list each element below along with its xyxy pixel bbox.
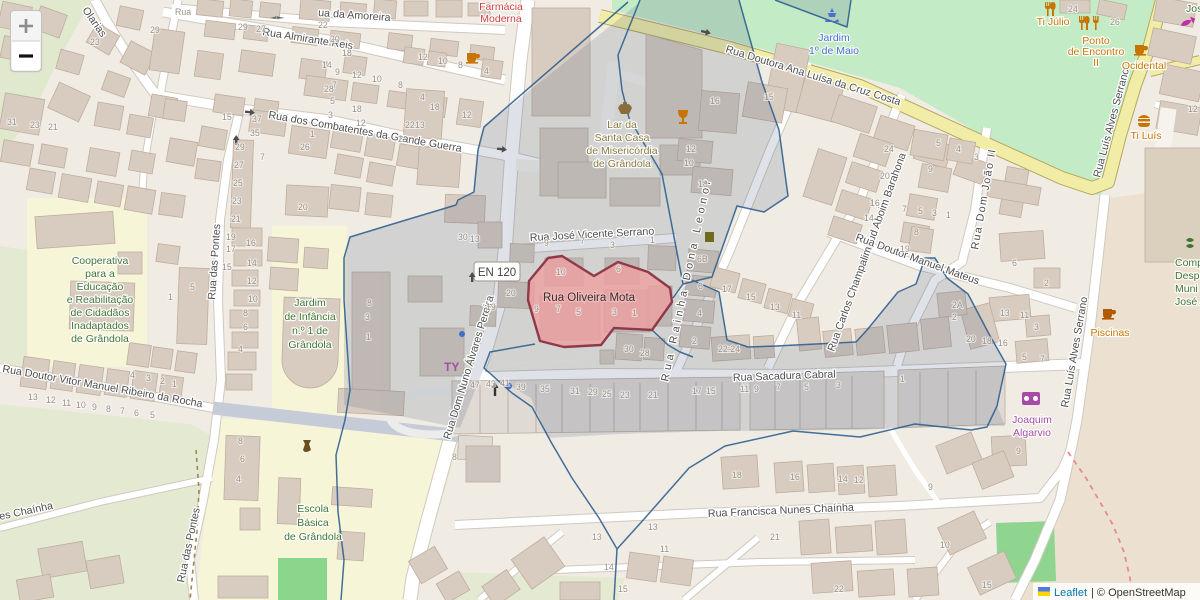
svg-text:3: 3 xyxy=(365,312,370,322)
svg-text:18: 18 xyxy=(430,102,440,112)
svg-text:8: 8 xyxy=(458,60,463,70)
svg-text:16: 16 xyxy=(246,238,256,248)
svg-text:11: 11 xyxy=(792,310,801,320)
svg-text:29: 29 xyxy=(150,25,160,35)
svg-text:4: 4 xyxy=(956,144,961,154)
svg-text:8: 8 xyxy=(398,80,403,90)
svg-text:24: 24 xyxy=(884,144,894,154)
svg-text:3: 3 xyxy=(1034,322,1039,332)
svg-text:22: 22 xyxy=(834,584,844,594)
svg-text:14: 14 xyxy=(322,60,332,70)
svg-text:Algarvio: Algarvio xyxy=(1013,427,1051,439)
svg-text:5: 5 xyxy=(190,282,195,292)
svg-text:para a: para a xyxy=(85,268,115,280)
svg-text:Leaflet: Leaflet xyxy=(1054,587,1087,599)
svg-text:3: 3 xyxy=(974,152,979,162)
svg-text:8: 8 xyxy=(243,308,248,318)
svg-text:1: 1 xyxy=(632,308,637,318)
svg-text:27: 27 xyxy=(234,160,244,170)
svg-text:30: 30 xyxy=(458,232,468,242)
svg-text:26: 26 xyxy=(300,142,310,152)
svg-text:de Misericórdia: de Misericórdia xyxy=(586,145,657,157)
svg-text:de Grândola: de Grândola xyxy=(284,531,342,543)
svg-text:2A: 2A xyxy=(952,300,963,310)
svg-text:5: 5 xyxy=(150,410,155,420)
svg-text:47: 47 xyxy=(470,380,480,390)
svg-text:20: 20 xyxy=(506,288,516,298)
svg-text:José: José xyxy=(1186,3,1200,15)
svg-text:13: 13 xyxy=(470,234,480,244)
svg-text:11: 11 xyxy=(62,398,71,408)
svg-text:7: 7 xyxy=(902,204,907,214)
svg-text:18: 18 xyxy=(352,104,362,114)
svg-text:Jardim: Jardim xyxy=(294,297,326,309)
svg-text:17: 17 xyxy=(692,386,702,396)
svg-text:25: 25 xyxy=(602,389,612,399)
svg-text:27: 27 xyxy=(256,24,266,34)
svg-text:22: 22 xyxy=(318,20,328,30)
svg-text:7: 7 xyxy=(776,382,781,392)
svg-text:21: 21 xyxy=(231,214,241,224)
svg-text:16: 16 xyxy=(998,338,1008,348)
svg-text:29: 29 xyxy=(238,22,248,32)
svg-text:10: 10 xyxy=(684,158,694,168)
svg-text:TY: TY xyxy=(444,360,459,374)
svg-text:43: 43 xyxy=(486,379,496,389)
svg-text:10: 10 xyxy=(438,56,448,66)
svg-text:9: 9 xyxy=(92,402,97,412)
svg-text:31: 31 xyxy=(7,117,17,127)
svg-text:1: 1 xyxy=(366,332,371,342)
svg-text:12: 12 xyxy=(356,118,366,128)
svg-text:37: 37 xyxy=(252,114,262,124)
svg-text:7: 7 xyxy=(120,406,125,416)
svg-text:6: 6 xyxy=(616,264,621,274)
svg-text:13: 13 xyxy=(1000,308,1010,318)
svg-text:30: 30 xyxy=(624,344,634,354)
svg-text:19: 19 xyxy=(486,302,496,312)
svg-text:10: 10 xyxy=(556,267,566,277)
svg-text:8: 8 xyxy=(238,436,243,446)
svg-text:8: 8 xyxy=(914,227,919,237)
svg-text:1: 1 xyxy=(168,292,173,302)
svg-text:12: 12 xyxy=(1188,104,1198,114)
svg-text:4: 4 xyxy=(236,474,241,484)
svg-text:Farmácia: Farmácia xyxy=(479,1,523,13)
svg-text:3: 3 xyxy=(612,307,617,317)
svg-text:15: 15 xyxy=(222,262,232,272)
svg-text:15: 15 xyxy=(222,112,232,122)
svg-text:29: 29 xyxy=(588,387,598,397)
svg-text:9: 9 xyxy=(1016,446,1021,456)
svg-text:1: 1 xyxy=(172,379,177,389)
svg-text:28: 28 xyxy=(324,84,334,94)
svg-text:12: 12 xyxy=(462,110,472,120)
svg-text:de Grândola: de Grândola xyxy=(71,333,129,345)
svg-text:9: 9 xyxy=(544,238,549,248)
svg-text:de Infância: de Infância xyxy=(284,311,336,323)
svg-text:3: 3 xyxy=(836,380,841,390)
svg-text:31: 31 xyxy=(570,386,580,396)
svg-text:23: 23 xyxy=(30,120,40,130)
svg-text:8: 8 xyxy=(367,298,372,308)
svg-text:23: 23 xyxy=(620,390,630,400)
svg-text:14: 14 xyxy=(864,213,874,223)
svg-text:15: 15 xyxy=(982,580,992,590)
svg-text:de Grândola: de Grândola xyxy=(593,158,651,170)
svg-text:6B: 6B xyxy=(697,254,708,264)
svg-text:II: II xyxy=(1093,57,1099,69)
svg-text:4: 4 xyxy=(420,92,425,102)
svg-text:12: 12 xyxy=(247,276,257,286)
svg-text:Moderna: Moderna xyxy=(480,13,522,25)
svg-text:29: 29 xyxy=(235,142,245,152)
svg-text:Comp: Comp xyxy=(1175,257,1200,269)
svg-text:5: 5 xyxy=(330,96,335,106)
svg-text:3: 3 xyxy=(932,208,937,218)
svg-text:21: 21 xyxy=(48,122,58,132)
svg-text:6: 6 xyxy=(243,322,248,332)
svg-text:4: 4 xyxy=(484,66,489,76)
svg-text:13: 13 xyxy=(415,120,425,130)
svg-text:23: 23 xyxy=(90,37,100,47)
svg-text:1º de Maio: 1º de Maio xyxy=(809,45,859,57)
svg-text:14: 14 xyxy=(604,562,614,572)
svg-text:1: 1 xyxy=(650,235,655,245)
svg-text:20: 20 xyxy=(330,34,340,44)
svg-text:9: 9 xyxy=(928,482,933,492)
svg-text:Jardim: Jardim xyxy=(818,32,850,44)
svg-text:15: 15 xyxy=(764,92,774,102)
svg-text:Rua: Rua xyxy=(175,7,191,17)
svg-text:15: 15 xyxy=(618,584,628,594)
svg-text:Ti Luís: Ti Luís xyxy=(1130,130,1161,142)
svg-text:13: 13 xyxy=(592,532,602,542)
svg-text:Ocidental: Ocidental xyxy=(1122,60,1166,72)
svg-text:Educação: Educação xyxy=(77,281,124,293)
svg-text:18: 18 xyxy=(982,336,992,346)
svg-text:11: 11 xyxy=(740,384,749,394)
svg-text:16: 16 xyxy=(870,198,880,208)
svg-text:6: 6 xyxy=(698,281,703,291)
svg-text:Escola: Escola xyxy=(297,503,329,515)
svg-text:1: 1 xyxy=(900,374,905,384)
svg-text:11: 11 xyxy=(660,544,669,554)
svg-text:10: 10 xyxy=(76,400,86,410)
svg-text:11: 11 xyxy=(1020,310,1029,320)
svg-text:20: 20 xyxy=(966,334,976,344)
svg-text:18: 18 xyxy=(342,48,352,58)
svg-text:17: 17 xyxy=(226,244,236,254)
svg-text:9: 9 xyxy=(754,384,759,394)
svg-text:21: 21 xyxy=(648,390,658,400)
svg-text:2: 2 xyxy=(398,134,403,144)
svg-text:16: 16 xyxy=(710,96,720,106)
svg-text:21: 21 xyxy=(770,532,780,542)
svg-text:3: 3 xyxy=(146,373,151,383)
svg-text:2: 2 xyxy=(1044,278,1049,288)
svg-text:23: 23 xyxy=(232,196,242,206)
svg-text:8: 8 xyxy=(452,452,457,462)
svg-text:18: 18 xyxy=(732,470,742,480)
svg-text:3: 3 xyxy=(328,110,333,120)
svg-text:13: 13 xyxy=(648,522,658,532)
svg-text:26: 26 xyxy=(1110,17,1120,27)
svg-text:13: 13 xyxy=(770,302,780,312)
svg-text:n.º 1 de: n.º 1 de xyxy=(292,325,328,337)
svg-text:25: 25 xyxy=(233,178,243,188)
svg-text:12: 12 xyxy=(686,144,696,154)
svg-text:28: 28 xyxy=(640,348,650,358)
svg-text:1: 1 xyxy=(946,210,951,220)
svg-text:18: 18 xyxy=(698,179,708,189)
svg-text:8: 8 xyxy=(106,404,111,414)
svg-text:9: 9 xyxy=(534,304,539,314)
svg-text:Básica: Básica xyxy=(297,517,329,529)
svg-text:16: 16 xyxy=(790,472,800,482)
svg-text:EN 120: EN 120 xyxy=(478,267,516,279)
svg-text:19: 19 xyxy=(900,244,910,254)
svg-text:35: 35 xyxy=(540,384,550,394)
svg-text:17: 17 xyxy=(722,284,732,294)
svg-text:41: 41 xyxy=(500,378,510,388)
svg-text:José Af: José Af xyxy=(1175,296,1200,308)
svg-text:22:24: 22:24 xyxy=(718,344,740,354)
svg-text:Grândola: Grândola xyxy=(288,339,331,351)
svg-text:Rua Oliveira Mota: Rua Oliveira Mota xyxy=(543,292,636,304)
svg-text:12: 12 xyxy=(352,70,362,80)
svg-text:6: 6 xyxy=(240,454,245,464)
svg-text:Muni: Muni xyxy=(1175,283,1198,295)
svg-text:39: 39 xyxy=(516,382,526,392)
svg-text:14: 14 xyxy=(247,258,257,268)
svg-text:2: 2 xyxy=(160,376,165,386)
svg-text:Joaquim: Joaquim xyxy=(1012,414,1052,426)
svg-text:13: 13 xyxy=(28,392,38,402)
svg-text:7: 7 xyxy=(260,152,265,162)
svg-text:12: 12 xyxy=(854,475,864,485)
svg-text:6: 6 xyxy=(134,408,139,418)
svg-text:Cooperativa: Cooperativa xyxy=(72,255,129,267)
svg-text:5: 5 xyxy=(918,206,923,216)
svg-text:9: 9 xyxy=(928,164,933,174)
svg-text:| © OpenStreetMap: | © OpenStreetMap xyxy=(1091,587,1186,599)
svg-text:2: 2 xyxy=(952,312,957,322)
svg-text:3: 3 xyxy=(610,240,615,250)
svg-text:10: 10 xyxy=(372,74,382,84)
svg-text:20: 20 xyxy=(298,202,308,212)
svg-text:19: 19 xyxy=(226,232,236,242)
svg-text:Inadaptados: Inadaptados xyxy=(71,320,129,332)
svg-text:5: 5 xyxy=(804,382,809,392)
svg-text:Lar da: Lar da xyxy=(607,119,637,131)
svg-text:12: 12 xyxy=(418,52,428,62)
svg-text:10: 10 xyxy=(940,540,950,550)
svg-text:4: 4 xyxy=(238,344,243,354)
svg-text:24: 24 xyxy=(1068,4,1078,14)
svg-text:7: 7 xyxy=(556,304,561,314)
svg-text:7: 7 xyxy=(1040,354,1045,364)
svg-text:4: 4 xyxy=(130,370,135,380)
svg-text:14: 14 xyxy=(838,474,848,484)
svg-text:15: 15 xyxy=(746,292,756,302)
svg-text:12: 12 xyxy=(46,395,56,405)
svg-text:1: 1 xyxy=(310,129,315,139)
svg-text:Ti Júlio: Ti Júlio xyxy=(1037,16,1070,28)
svg-text:2: 2 xyxy=(692,336,697,346)
svg-text:4: 4 xyxy=(697,308,702,318)
svg-text:de Cidadãos: de Cidadãos xyxy=(71,307,130,319)
svg-text:9: 9 xyxy=(335,67,340,77)
svg-text:10: 10 xyxy=(248,294,258,304)
svg-text:20: 20 xyxy=(880,171,890,181)
svg-text:5: 5 xyxy=(936,138,941,148)
svg-text:35: 35 xyxy=(250,128,260,138)
svg-text:5: 5 xyxy=(1022,352,1027,362)
svg-text:22: 22 xyxy=(405,120,415,130)
svg-text:Piscinas: Piscinas xyxy=(1090,327,1129,339)
svg-text:5: 5 xyxy=(576,307,581,317)
svg-text:7: 7 xyxy=(580,236,585,246)
svg-text:Despo: Despo xyxy=(1175,270,1200,282)
svg-text:15: 15 xyxy=(706,386,716,396)
svg-text:e Reabilitação: e Reabilitação xyxy=(67,294,134,306)
svg-text:6: 6 xyxy=(1012,258,1017,268)
svg-text:Santa Casa: Santa Casa xyxy=(595,132,650,144)
